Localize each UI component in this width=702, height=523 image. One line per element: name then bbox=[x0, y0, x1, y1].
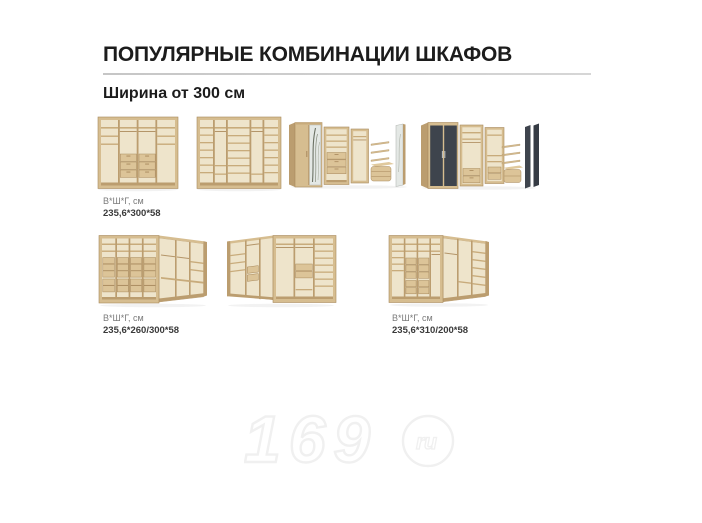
product-image-combination-mirror[interactable] bbox=[287, 112, 411, 190]
section-subtitle: Ширина от 300 см bbox=[103, 85, 245, 103]
product-image-straight-wardrobe-shelves[interactable] bbox=[196, 114, 282, 192]
dimensions-label: В*Ш*Г, см 235,6*310/200*58 bbox=[392, 313, 468, 336]
watermark-text: 169 bbox=[244, 409, 378, 471]
watermark-domain: ru bbox=[416, 431, 437, 454]
watermark-logo: 169 ru bbox=[244, 409, 459, 471]
dimensions-label: В*Ш*Г, см 235,6*300*58 bbox=[103, 196, 161, 219]
combination-graphite-illustration bbox=[419, 112, 541, 190]
straight-wardrobe-shelves-illustration bbox=[196, 114, 282, 192]
product-image-corner-wardrobe-2[interactable] bbox=[225, 231, 339, 309]
corner-wardrobe-3-illustration bbox=[387, 231, 492, 308]
product-image-corner-wardrobe-1[interactable] bbox=[97, 231, 211, 309]
dimensions-value: 235,6*310/200*58 bbox=[392, 325, 468, 337]
product-image-corner-wardrobe-3[interactable] bbox=[387, 231, 492, 308]
page-title: ПОПУЛЯРНЫЕ КОМБИНАЦИИ ШКАФОВ bbox=[103, 43, 512, 67]
dimensions-value: 235,6*300*58 bbox=[103, 208, 161, 220]
corner-wardrobe-2-illustration bbox=[225, 231, 339, 309]
product-image-combination-graphite[interactable] bbox=[419, 112, 541, 190]
combination-mirror-illustration bbox=[287, 112, 411, 190]
dimensions-caption: В*Ш*Г, см bbox=[392, 313, 468, 325]
dimensions-caption: В*Ш*Г, см bbox=[103, 196, 161, 208]
straight-wardrobe-drawers-illustration bbox=[97, 114, 179, 192]
dimensions-value: 235,6*260/300*58 bbox=[103, 325, 179, 337]
dimensions-label: В*Ш*Г, см 235,6*260/300*58 bbox=[103, 313, 179, 336]
catalog-page: ПОПУЛЯРНЫЕ КОМБИНАЦИИ ШКАФОВ Ширина от 3… bbox=[0, 0, 702, 523]
product-image-straight-wardrobe-drawers[interactable] bbox=[97, 114, 179, 192]
title-divider bbox=[103, 73, 591, 75]
dimensions-caption: В*Ш*Г, см bbox=[103, 313, 179, 325]
corner-wardrobe-1-illustration bbox=[97, 231, 211, 309]
